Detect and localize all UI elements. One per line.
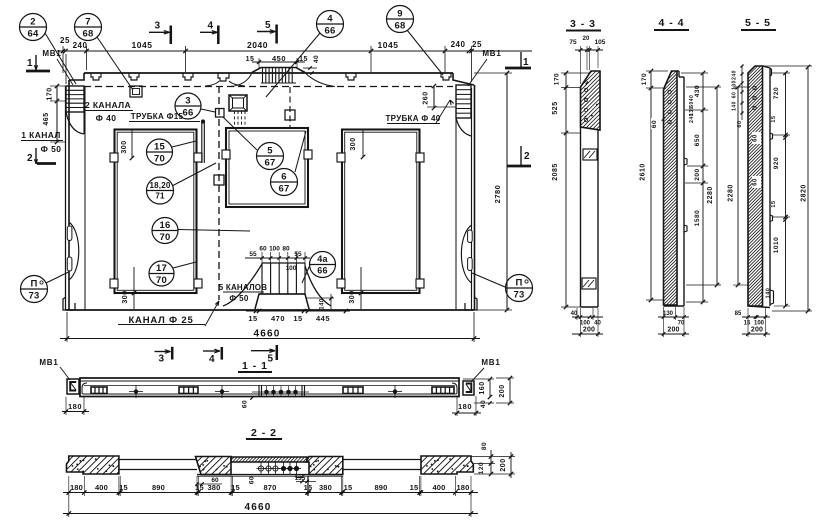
svg-text:67: 67 bbox=[279, 184, 290, 195]
svg-text:170: 170 bbox=[554, 73, 561, 85]
svg-text:300: 300 bbox=[349, 290, 356, 303]
svg-text:17: 17 bbox=[156, 263, 167, 274]
svg-text:15: 15 bbox=[304, 483, 313, 492]
svg-text:200: 200 bbox=[667, 327, 679, 334]
svg-text:85: 85 bbox=[735, 311, 742, 317]
svg-text:1 КАНАЛ: 1 КАНАЛ bbox=[21, 130, 61, 140]
svg-text:5: 5 bbox=[267, 146, 273, 157]
svg-text:2040: 2040 bbox=[247, 40, 268, 50]
svg-text:100: 100 bbox=[286, 265, 297, 272]
svg-text:240: 240 bbox=[732, 70, 738, 80]
svg-text:140: 140 bbox=[320, 298, 326, 310]
svg-text:68: 68 bbox=[395, 21, 406, 32]
svg-text:2: 2 bbox=[30, 17, 35, 28]
svg-text:40: 40 bbox=[313, 55, 320, 63]
svg-text:300: 300 bbox=[122, 290, 129, 303]
svg-text:55: 55 bbox=[294, 251, 302, 258]
svg-text:66: 66 bbox=[317, 266, 327, 276]
svg-text:200: 200 bbox=[500, 458, 507, 471]
svg-text:525: 525 bbox=[552, 101, 559, 114]
svg-text:140: 140 bbox=[732, 101, 738, 111]
svg-text:2 - 2: 2 - 2 bbox=[251, 427, 277, 439]
svg-text:15: 15 bbox=[231, 483, 240, 492]
svg-text:МВ1: МВ1 bbox=[39, 358, 58, 367]
svg-text:3: 3 bbox=[185, 96, 190, 107]
svg-text:75: 75 bbox=[569, 39, 577, 46]
svg-text:400: 400 bbox=[432, 483, 445, 492]
svg-text:180: 180 bbox=[70, 483, 83, 492]
svg-text:60: 60 bbox=[249, 476, 256, 484]
svg-text:430: 430 bbox=[694, 85, 701, 97]
svg-text:60: 60 bbox=[651, 120, 658, 128]
svg-text:66: 66 bbox=[183, 108, 194, 119]
svg-text:60: 60 bbox=[753, 178, 759, 186]
svg-text:15: 15 bbox=[344, 483, 353, 492]
svg-text:Ф 40: Ф 40 bbox=[96, 113, 117, 123]
svg-text:60: 60 bbox=[259, 246, 267, 253]
svg-text:2280: 2280 bbox=[707, 186, 714, 204]
svg-text:ТРУБКА Ф 40: ТРУБКА Ф 40 bbox=[386, 114, 441, 123]
svg-text:4: 4 bbox=[207, 21, 213, 32]
svg-text:135: 135 bbox=[295, 475, 306, 482]
svg-text:380: 380 bbox=[207, 483, 220, 492]
svg-text:70: 70 bbox=[156, 275, 167, 286]
svg-text:80: 80 bbox=[481, 442, 488, 450]
svg-text:15: 15 bbox=[410, 483, 419, 492]
svg-text:920: 920 bbox=[773, 157, 780, 169]
svg-text:890: 890 bbox=[152, 483, 165, 492]
svg-text:2780: 2780 bbox=[493, 185, 502, 204]
svg-text:180: 180 bbox=[458, 402, 472, 411]
svg-text:60: 60 bbox=[242, 400, 249, 408]
svg-text:1 - 1: 1 - 1 bbox=[242, 360, 268, 372]
svg-text:70: 70 bbox=[154, 154, 165, 165]
svg-text:450: 450 bbox=[272, 54, 286, 63]
svg-text:73: 73 bbox=[29, 291, 40, 302]
svg-text:Ф 50: Ф 50 bbox=[229, 294, 248, 303]
svg-text:2820: 2820 bbox=[801, 184, 808, 202]
svg-text:140: 140 bbox=[766, 288, 772, 299]
svg-text:40: 40 bbox=[689, 95, 695, 102]
svg-text:67: 67 bbox=[265, 158, 276, 169]
svg-text:3: 3 bbox=[154, 21, 160, 32]
svg-text:720: 720 bbox=[773, 87, 780, 99]
svg-text:5 КАНАЛОВ: 5 КАНАЛОВ bbox=[219, 283, 267, 292]
svg-text:2610: 2610 bbox=[640, 163, 647, 181]
svg-text:3 - 3: 3 - 3 bbox=[570, 18, 596, 30]
svg-text:1010: 1010 bbox=[773, 237, 780, 253]
svg-text:Ф 50: Ф 50 bbox=[41, 144, 62, 154]
svg-text:16: 16 bbox=[160, 220, 171, 231]
svg-text:130: 130 bbox=[663, 311, 674, 317]
svg-text:200: 200 bbox=[751, 327, 763, 334]
svg-text:4: 4 bbox=[209, 354, 215, 365]
svg-text:15: 15 bbox=[246, 56, 255, 63]
svg-text:200: 200 bbox=[499, 384, 506, 397]
svg-text:80: 80 bbox=[282, 246, 290, 253]
svg-text:15: 15 bbox=[299, 56, 308, 63]
svg-text:64: 64 bbox=[28, 29, 39, 40]
svg-text:60: 60 bbox=[732, 92, 738, 99]
svg-text:300: 300 bbox=[121, 140, 128, 153]
svg-text:300: 300 bbox=[350, 137, 357, 150]
svg-text:170: 170 bbox=[641, 73, 648, 85]
svg-text:4 - 4: 4 - 4 bbox=[658, 17, 684, 29]
svg-text:40: 40 bbox=[480, 400, 487, 408]
svg-text:5 - 5: 5 - 5 bbox=[745, 17, 771, 29]
svg-text:650: 650 bbox=[694, 134, 701, 146]
svg-text:380: 380 bbox=[319, 483, 332, 492]
svg-text:73: 73 bbox=[514, 290, 525, 301]
svg-text:1045: 1045 bbox=[132, 40, 153, 50]
svg-text:160: 160 bbox=[479, 381, 486, 394]
svg-text:15: 15 bbox=[293, 314, 302, 323]
svg-text:1580: 1580 bbox=[694, 210, 701, 226]
svg-text:470: 470 bbox=[271, 314, 285, 323]
svg-text:15: 15 bbox=[119, 483, 128, 492]
svg-text:П: П bbox=[515, 278, 522, 289]
svg-text:15: 15 bbox=[771, 115, 777, 122]
svg-text:3: 3 bbox=[158, 354, 164, 365]
svg-text:15: 15 bbox=[248, 314, 257, 323]
svg-text:55: 55 bbox=[249, 251, 257, 258]
svg-text:МВ1: МВ1 bbox=[482, 49, 501, 58]
svg-text:5: 5 bbox=[267, 354, 273, 365]
svg-text:180: 180 bbox=[456, 483, 469, 492]
svg-text:240: 240 bbox=[73, 41, 88, 50]
svg-text:15: 15 bbox=[195, 483, 204, 492]
svg-text:71: 71 bbox=[155, 192, 165, 201]
svg-text:180: 180 bbox=[68, 402, 82, 411]
svg-text:2085: 2085 bbox=[552, 163, 559, 181]
svg-text:445: 445 bbox=[316, 314, 330, 323]
svg-text:70: 70 bbox=[160, 232, 171, 243]
svg-text:200: 200 bbox=[583, 327, 595, 334]
svg-text:105: 105 bbox=[595, 39, 606, 46]
svg-text:100: 100 bbox=[269, 246, 280, 253]
svg-text:П: П bbox=[30, 279, 37, 290]
svg-text:6: 6 bbox=[281, 172, 286, 183]
svg-text:4: 4 bbox=[327, 14, 333, 25]
svg-text:4а: 4а bbox=[317, 254, 328, 264]
svg-text:МВ1: МВ1 bbox=[42, 49, 61, 58]
svg-text:15: 15 bbox=[771, 200, 777, 207]
svg-text:200: 200 bbox=[694, 168, 701, 180]
svg-text:68: 68 bbox=[83, 29, 94, 40]
svg-text:4660: 4660 bbox=[244, 502, 271, 513]
svg-text:15: 15 bbox=[154, 142, 165, 153]
svg-text:1: 1 bbox=[523, 57, 529, 68]
svg-text:20: 20 bbox=[583, 36, 590, 42]
svg-text:1045: 1045 bbox=[378, 40, 399, 50]
svg-text:7: 7 bbox=[85, 17, 90, 28]
svg-text:2: 2 bbox=[524, 151, 530, 162]
svg-text:2280: 2280 bbox=[728, 184, 735, 202]
svg-text:870: 870 bbox=[263, 483, 276, 492]
svg-text:25: 25 bbox=[472, 40, 482, 49]
svg-text:25: 25 bbox=[60, 36, 70, 45]
svg-text:400: 400 bbox=[95, 483, 108, 492]
svg-text:4660: 4660 bbox=[253, 329, 280, 340]
svg-text:ТРУБКА Ф15: ТРУБКА Ф15 bbox=[131, 112, 184, 121]
svg-text:2: 2 bbox=[27, 153, 33, 164]
svg-text:60: 60 bbox=[753, 134, 759, 142]
svg-text:240: 240 bbox=[689, 113, 695, 123]
svg-text:18,20: 18,20 bbox=[149, 181, 170, 190]
svg-text:МВ1: МВ1 bbox=[481, 358, 500, 367]
svg-text:1: 1 bbox=[27, 58, 33, 69]
svg-text:66: 66 bbox=[325, 26, 336, 37]
svg-text:465: 465 bbox=[43, 112, 50, 125]
svg-text:9: 9 bbox=[397, 9, 402, 20]
svg-text:260: 260 bbox=[423, 91, 430, 104]
svg-text:2 КАНАЛА: 2 КАНАЛА bbox=[85, 100, 131, 110]
svg-text:890: 890 bbox=[374, 483, 387, 492]
svg-text:170: 170 bbox=[47, 87, 54, 100]
svg-text:240: 240 bbox=[451, 40, 466, 49]
